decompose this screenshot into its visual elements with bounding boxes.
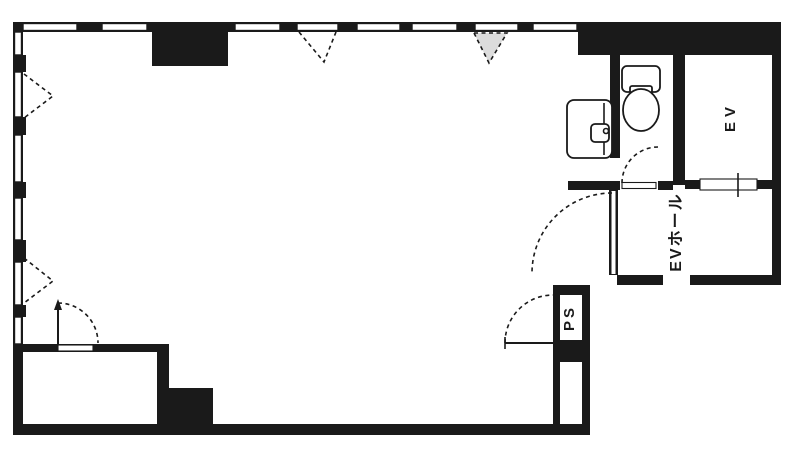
window-segment: [533, 24, 577, 31]
wc-right-wall: [673, 55, 685, 185]
left-wall-mullion: [13, 117, 26, 135]
floor-plan-drawing: EV EVホール PS: [0, 0, 787, 464]
left-wall-mullion: [13, 305, 26, 317]
sink-icon: [567, 100, 612, 158]
outer-walls: [13, 22, 781, 435]
window-segment: [15, 72, 22, 117]
ev-hall-bottom-wall-left: [617, 275, 663, 285]
storage-corner-block: [157, 388, 213, 430]
casement-swing-icon: [24, 74, 53, 118]
storage-door-sill: [58, 345, 93, 351]
casement-swing-icon: [474, 33, 507, 63]
ps-door-swing-icon: [505, 295, 553, 343]
entry-door-frame-inner: [612, 191, 616, 274]
ev-door: [700, 179, 757, 190]
storage-door-leaf-tip: [54, 299, 62, 310]
column: [152, 22, 228, 66]
ev-hall-bottom-wall-right: [690, 275, 781, 285]
washroom-bottom-wall: [568, 181, 620, 190]
storage-room: [13, 299, 213, 430]
storage-door-swing-icon: [58, 303, 98, 343]
window-segment: [15, 262, 22, 305]
ps-shaft-interior: [560, 362, 582, 424]
bottom-wall: [13, 424, 590, 435]
wc-door-swing-icon: [622, 147, 658, 183]
window-segment: [15, 198, 22, 240]
toilet-bowl: [623, 89, 659, 131]
ev-room-label: EV: [722, 102, 739, 132]
casement-swing-icon: [299, 32, 336, 62]
toilet-icon: [622, 66, 660, 131]
window-segment: [235, 24, 280, 31]
storage-right-wall: [157, 344, 169, 388]
window-segment: [357, 24, 400, 31]
entry-door: [532, 190, 618, 275]
casement-swing-icon: [24, 258, 53, 303]
top-right-thick-wall: [578, 22, 781, 55]
wc-door-sill: [622, 183, 656, 189]
ps-label: PS: [561, 305, 578, 331]
window-segment: [15, 32, 22, 55]
left-wall-mullion: [13, 55, 26, 72]
entry-door-swing-icon: [532, 193, 612, 273]
window-segment: [23, 24, 77, 31]
window-segment: [412, 24, 457, 31]
window-segment: [475, 24, 518, 31]
wc-bottom-wall: [658, 181, 673, 190]
floor-plan-canvas: EV EVホール PS: [0, 0, 787, 464]
window-segment: [297, 24, 338, 31]
window-segment: [102, 24, 147, 31]
ev-hall-label: EVホール: [667, 192, 685, 271]
left-wall-mullion: [13, 182, 26, 198]
window-segment: [15, 135, 22, 182]
window-segment: [15, 317, 22, 344]
right-wall: [772, 22, 781, 285]
top-windows: [23, 24, 577, 64]
